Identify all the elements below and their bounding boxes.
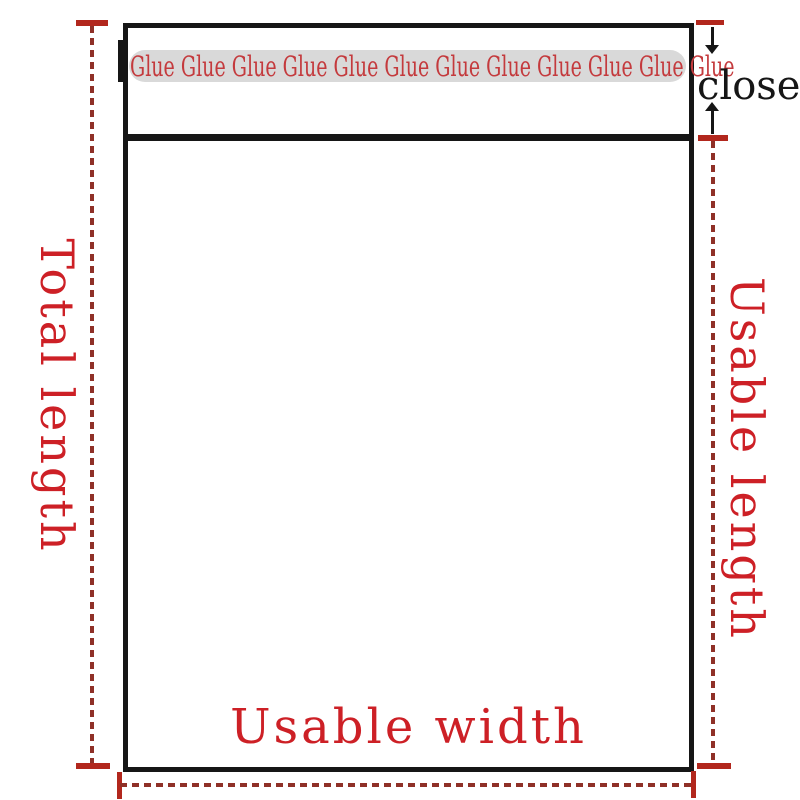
usable-width-dashed-line xyxy=(120,783,694,787)
arrow-up-shaft xyxy=(711,111,714,134)
arrow-up-icon xyxy=(705,102,719,111)
total-length-label: Total length xyxy=(33,236,81,556)
flap-fold-line xyxy=(123,134,694,141)
bag-dimension-diagram: Glue Glue Glue Glue Glue Glue Glue Glue … xyxy=(0,0,800,800)
glue-strip-left-notch xyxy=(118,40,128,82)
total-length-bottom-tick xyxy=(76,763,110,769)
close-top-tick xyxy=(696,20,724,25)
arrow-down-shaft xyxy=(711,27,714,46)
total-length-dashed-line xyxy=(90,26,94,763)
usable-length-bottom-tick xyxy=(697,763,731,769)
usable-length-label: Usable length xyxy=(723,277,771,617)
usable-width-right-tick xyxy=(691,771,696,798)
usable-width-label: Usable width xyxy=(123,701,694,753)
arrow-down-icon xyxy=(705,45,719,54)
usable-length-dashed-line xyxy=(711,141,715,763)
glue-strip-text: Glue Glue Glue Glue Glue Glue Glue Glue … xyxy=(130,51,735,83)
